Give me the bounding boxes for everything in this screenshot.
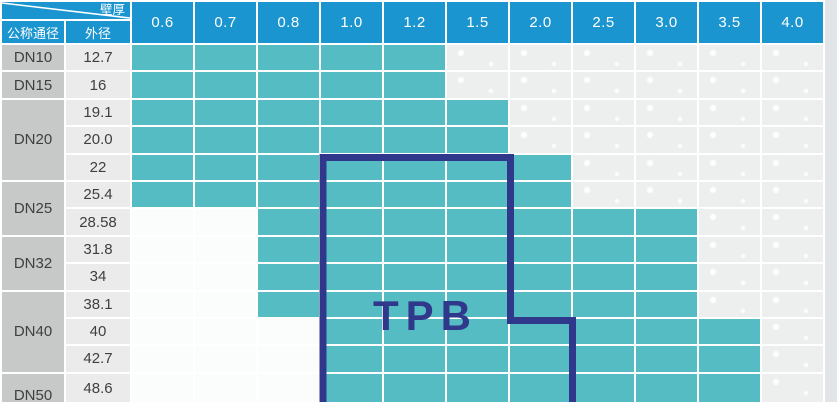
availability-cell-available — [321, 209, 382, 234]
availability-cell-empty — [636, 100, 697, 125]
availability-cell-available — [447, 374, 508, 402]
availability-cell-empty — [195, 346, 256, 371]
availability-cell-empty — [195, 237, 256, 262]
availability-cell-available — [258, 264, 319, 289]
thickness-header-cell: 0.8 — [258, 2, 319, 43]
availability-cell-empty — [699, 72, 760, 97]
availability-cell-available — [447, 237, 508, 262]
availability-cell-available — [636, 374, 697, 402]
thickness-header-row: 壁厚 公称通径 外径 0.60.70.81.01.21.52.02.53.03.… — [2, 2, 823, 43]
outer-diameter-cell: 20.0 — [66, 127, 130, 152]
availability-cell-empty — [762, 182, 823, 207]
outer-diameter-cell: 42.7 — [66, 346, 130, 371]
availability-cell-empty — [762, 319, 823, 344]
availability-cell-empty — [573, 45, 634, 70]
outer-diameter-cell: 48.6 — [66, 374, 130, 402]
availability-cell-empty — [636, 45, 697, 70]
nominal-diameter-value: DN50 — [2, 374, 64, 402]
availability-cell-available — [510, 264, 571, 289]
thickness-header-cell: 1.5 — [447, 2, 508, 43]
availability-cell-available — [195, 100, 256, 125]
availability-cell-available — [447, 155, 508, 180]
availability-cell-available — [384, 45, 445, 70]
availability-cell-available — [447, 264, 508, 289]
availability-cell-available — [510, 292, 571, 317]
availability-cell-available — [195, 127, 256, 152]
outer-diameter-cell: 25.4 — [66, 182, 130, 207]
availability-cell-available — [510, 237, 571, 262]
availability-cell-available — [447, 346, 508, 371]
table-row: 22 — [2, 155, 823, 180]
thickness-header-cell: 1.2 — [384, 2, 445, 43]
availability-cell-available — [573, 346, 634, 371]
availability-cell-empty — [699, 292, 760, 317]
availability-cell-empty — [510, 72, 571, 97]
availability-cell-empty — [195, 374, 256, 402]
table-row: 34 — [2, 264, 823, 289]
availability-cell-available — [384, 182, 445, 207]
availability-cell-available — [132, 72, 193, 97]
availability-cell-empty — [510, 45, 571, 70]
corner-sub-headers: 公称通径 外径 — [2, 21, 130, 43]
availability-cell-available — [321, 182, 382, 207]
availability-cell-available — [447, 100, 508, 125]
table-row: DN1516 — [2, 72, 823, 97]
wall-thickness-spec-table: 壁厚 公称通径 外径 0.60.70.81.01.21.52.02.53.03.… — [0, 0, 825, 402]
nominal-diameter-cell: DN40 — [2, 292, 64, 372]
availability-cell-available — [384, 100, 445, 125]
availability-cell-available — [510, 346, 571, 371]
availability-cell-available — [636, 319, 697, 344]
availability-cell-available — [573, 237, 634, 262]
availability-cell-available — [573, 264, 634, 289]
availability-cell-empty — [762, 127, 823, 152]
availability-cell-empty — [132, 209, 193, 234]
availability-cell-empty — [699, 100, 760, 125]
availability-cell-empty — [762, 72, 823, 97]
table-row: 42.7 — [2, 346, 823, 371]
thickness-header-cell: 0.6 — [132, 2, 193, 43]
table-row: 28.58 — [2, 209, 823, 234]
availability-cell-empty — [699, 45, 760, 70]
availability-cell-available — [699, 346, 760, 371]
availability-cell-empty — [132, 374, 193, 402]
table-row: DN2019.1 — [2, 100, 823, 125]
corner-header: 壁厚 公称通径 外径 — [2, 2, 130, 43]
availability-cell-available — [132, 127, 193, 152]
nominal-diameter-value: DN20 — [14, 131, 52, 148]
availability-cell-available — [258, 155, 319, 180]
availability-cell-available — [699, 374, 760, 402]
availability-cell-available — [132, 155, 193, 180]
availability-cell-empty — [699, 155, 760, 180]
tpb-label: TPB — [334, 295, 510, 337]
outer-diameter-cell: 12.7 — [66, 45, 130, 70]
availability-cell-empty — [132, 264, 193, 289]
availability-cell-available — [258, 209, 319, 234]
thickness-header-cell: 0.7 — [195, 2, 256, 43]
availability-cell-available — [195, 155, 256, 180]
thickness-header-cell: 1.0 — [321, 2, 382, 43]
nominal-diameter-value: DN25 — [14, 200, 52, 217]
outer-diameter-cell: 19.1 — [66, 100, 130, 125]
availability-cell-available — [573, 292, 634, 317]
availability-cell-empty — [573, 155, 634, 180]
availability-cell-empty — [636, 72, 697, 97]
availability-cell-available — [258, 237, 319, 262]
nominal-diameter-value: DN40 — [14, 323, 52, 340]
availability-cell-available — [384, 127, 445, 152]
availability-cell-available — [384, 374, 445, 402]
availability-cell-available — [321, 374, 382, 402]
availability-cell-available — [195, 45, 256, 70]
availability-cell-available — [195, 72, 256, 97]
availability-cell-available — [321, 72, 382, 97]
availability-cell-available — [321, 155, 382, 180]
availability-cell-available — [510, 155, 571, 180]
availability-cell-available — [195, 182, 256, 207]
availability-cell-available — [321, 127, 382, 152]
availability-cell-empty — [762, 209, 823, 234]
availability-cell-empty — [699, 127, 760, 152]
availability-cell-empty — [195, 319, 256, 344]
availability-cell-empty — [258, 346, 319, 371]
availability-cell-available — [321, 237, 382, 262]
outer-diameter-cell: 40 — [66, 319, 130, 344]
thickness-header-cell: 3.5 — [699, 2, 760, 43]
availability-cell-empty — [132, 237, 193, 262]
availability-cell-available — [636, 237, 697, 262]
availability-cell-empty — [258, 374, 319, 402]
availability-cell-available — [384, 72, 445, 97]
availability-cell-empty — [195, 292, 256, 317]
availability-cell-available — [447, 127, 508, 152]
availability-cell-empty — [447, 72, 508, 97]
nominal-diameter-cell: DN20 — [2, 100, 64, 180]
availability-cell-empty — [636, 182, 697, 207]
nominal-diameter-cell: DN10 — [2, 45, 64, 70]
availability-cell-empty — [132, 346, 193, 371]
corner-header-cell: 壁厚 公称通径 外径 — [2, 2, 130, 43]
nominal-diameter-header: 公称通径 — [2, 21, 64, 43]
availability-cell-empty — [132, 319, 193, 344]
nominal-diameter-cell: DN50 — [2, 374, 64, 402]
availability-cell-available — [384, 346, 445, 371]
availability-cell-available — [447, 182, 508, 207]
nominal-diameter-cell: DN32 — [2, 237, 64, 290]
availability-cell-available — [321, 100, 382, 125]
availability-cell-empty — [195, 209, 256, 234]
availability-cell-available — [321, 264, 382, 289]
availability-cell-empty — [510, 127, 571, 152]
availability-cell-available — [573, 374, 634, 402]
availability-cell-available — [636, 264, 697, 289]
availability-cell-available — [636, 209, 697, 234]
availability-cell-available — [384, 155, 445, 180]
outer-diameter-cell: 31.8 — [66, 237, 130, 262]
availability-cell-available — [258, 127, 319, 152]
availability-cell-available — [699, 319, 760, 344]
availability-cell-available — [258, 292, 319, 317]
availability-cell-empty — [699, 209, 760, 234]
nominal-diameter-cell: DN25 — [2, 182, 64, 235]
nominal-diameter-value: DN15 — [14, 77, 52, 94]
availability-cell-available — [258, 100, 319, 125]
thickness-header-cell: 4.0 — [762, 2, 823, 43]
availability-cell-available — [447, 209, 508, 234]
outer-diameter-cell: 16 — [66, 72, 130, 97]
availability-cell-empty — [762, 237, 823, 262]
availability-cell-empty — [195, 264, 256, 289]
availability-cell-empty — [573, 72, 634, 97]
availability-cell-available — [321, 45, 382, 70]
availability-cell-available — [636, 346, 697, 371]
availability-cell-available — [384, 237, 445, 262]
availability-cell-empty — [699, 182, 760, 207]
availability-cell-empty — [573, 100, 634, 125]
availability-cell-available — [510, 374, 571, 402]
availability-cell-empty — [762, 346, 823, 371]
availability-cell-available — [384, 264, 445, 289]
corner-diagonal-area: 壁厚 — [2, 2, 130, 19]
outer-diameter-cell: 34 — [66, 264, 130, 289]
availability-cell-available — [636, 292, 697, 317]
availability-cell-empty — [762, 264, 823, 289]
availability-cell-available — [510, 209, 571, 234]
availability-cell-available — [132, 182, 193, 207]
table-row: DN1012.7 — [2, 45, 823, 70]
table-row: DN3231.8 — [2, 237, 823, 262]
availability-cell-empty — [447, 45, 508, 70]
availability-cell-available — [573, 209, 634, 234]
outer-diameter-cell: 22 — [66, 155, 130, 180]
thickness-header-cell: 2.0 — [510, 2, 571, 43]
table-row: DN2525.4 — [2, 182, 823, 207]
availability-cell-available — [132, 45, 193, 70]
availability-cell-available — [573, 319, 634, 344]
thickness-header-cell: 3.0 — [636, 2, 697, 43]
availability-cell-empty — [699, 237, 760, 262]
nominal-diameter-value: DN10 — [14, 49, 52, 66]
availability-cell-available — [510, 319, 571, 344]
availability-cell-empty — [573, 127, 634, 152]
availability-cell-empty — [762, 100, 823, 125]
availability-cell-empty — [132, 292, 193, 317]
availability-cell-available — [321, 346, 382, 371]
availability-cell-available — [510, 182, 571, 207]
wall-thickness-label: 壁厚 — [100, 3, 125, 18]
thickness-header-cell: 2.5 — [573, 2, 634, 43]
table-row: DN5048.6 — [2, 374, 823, 402]
availability-cell-empty — [762, 374, 823, 402]
availability-cell-empty — [762, 292, 823, 317]
availability-cell-available — [258, 45, 319, 70]
outer-diameter-header: 外径 — [66, 21, 130, 43]
availability-cell-empty — [762, 155, 823, 180]
availability-cell-available — [384, 209, 445, 234]
availability-cell-available — [258, 182, 319, 207]
outer-diameter-cell: 28.58 — [66, 209, 130, 234]
availability-cell-empty — [762, 45, 823, 70]
availability-cell-empty — [699, 264, 760, 289]
availability-cell-empty — [636, 155, 697, 180]
availability-cell-available — [258, 72, 319, 97]
availability-cell-empty — [573, 182, 634, 207]
availability-cell-empty — [258, 319, 319, 344]
outer-diameter-cell: 38.1 — [66, 292, 130, 317]
wall-thickness-spec-page: 壁厚 公称通径 外径 0.60.70.81.01.21.52.02.53.03.… — [0, 0, 837, 402]
table-row: 20.0 — [2, 127, 823, 152]
availability-cell-empty — [510, 100, 571, 125]
availability-cell-empty — [636, 127, 697, 152]
nominal-diameter-value: DN32 — [14, 255, 52, 272]
nominal-diameter-cell: DN15 — [2, 72, 64, 97]
availability-cell-available — [132, 100, 193, 125]
